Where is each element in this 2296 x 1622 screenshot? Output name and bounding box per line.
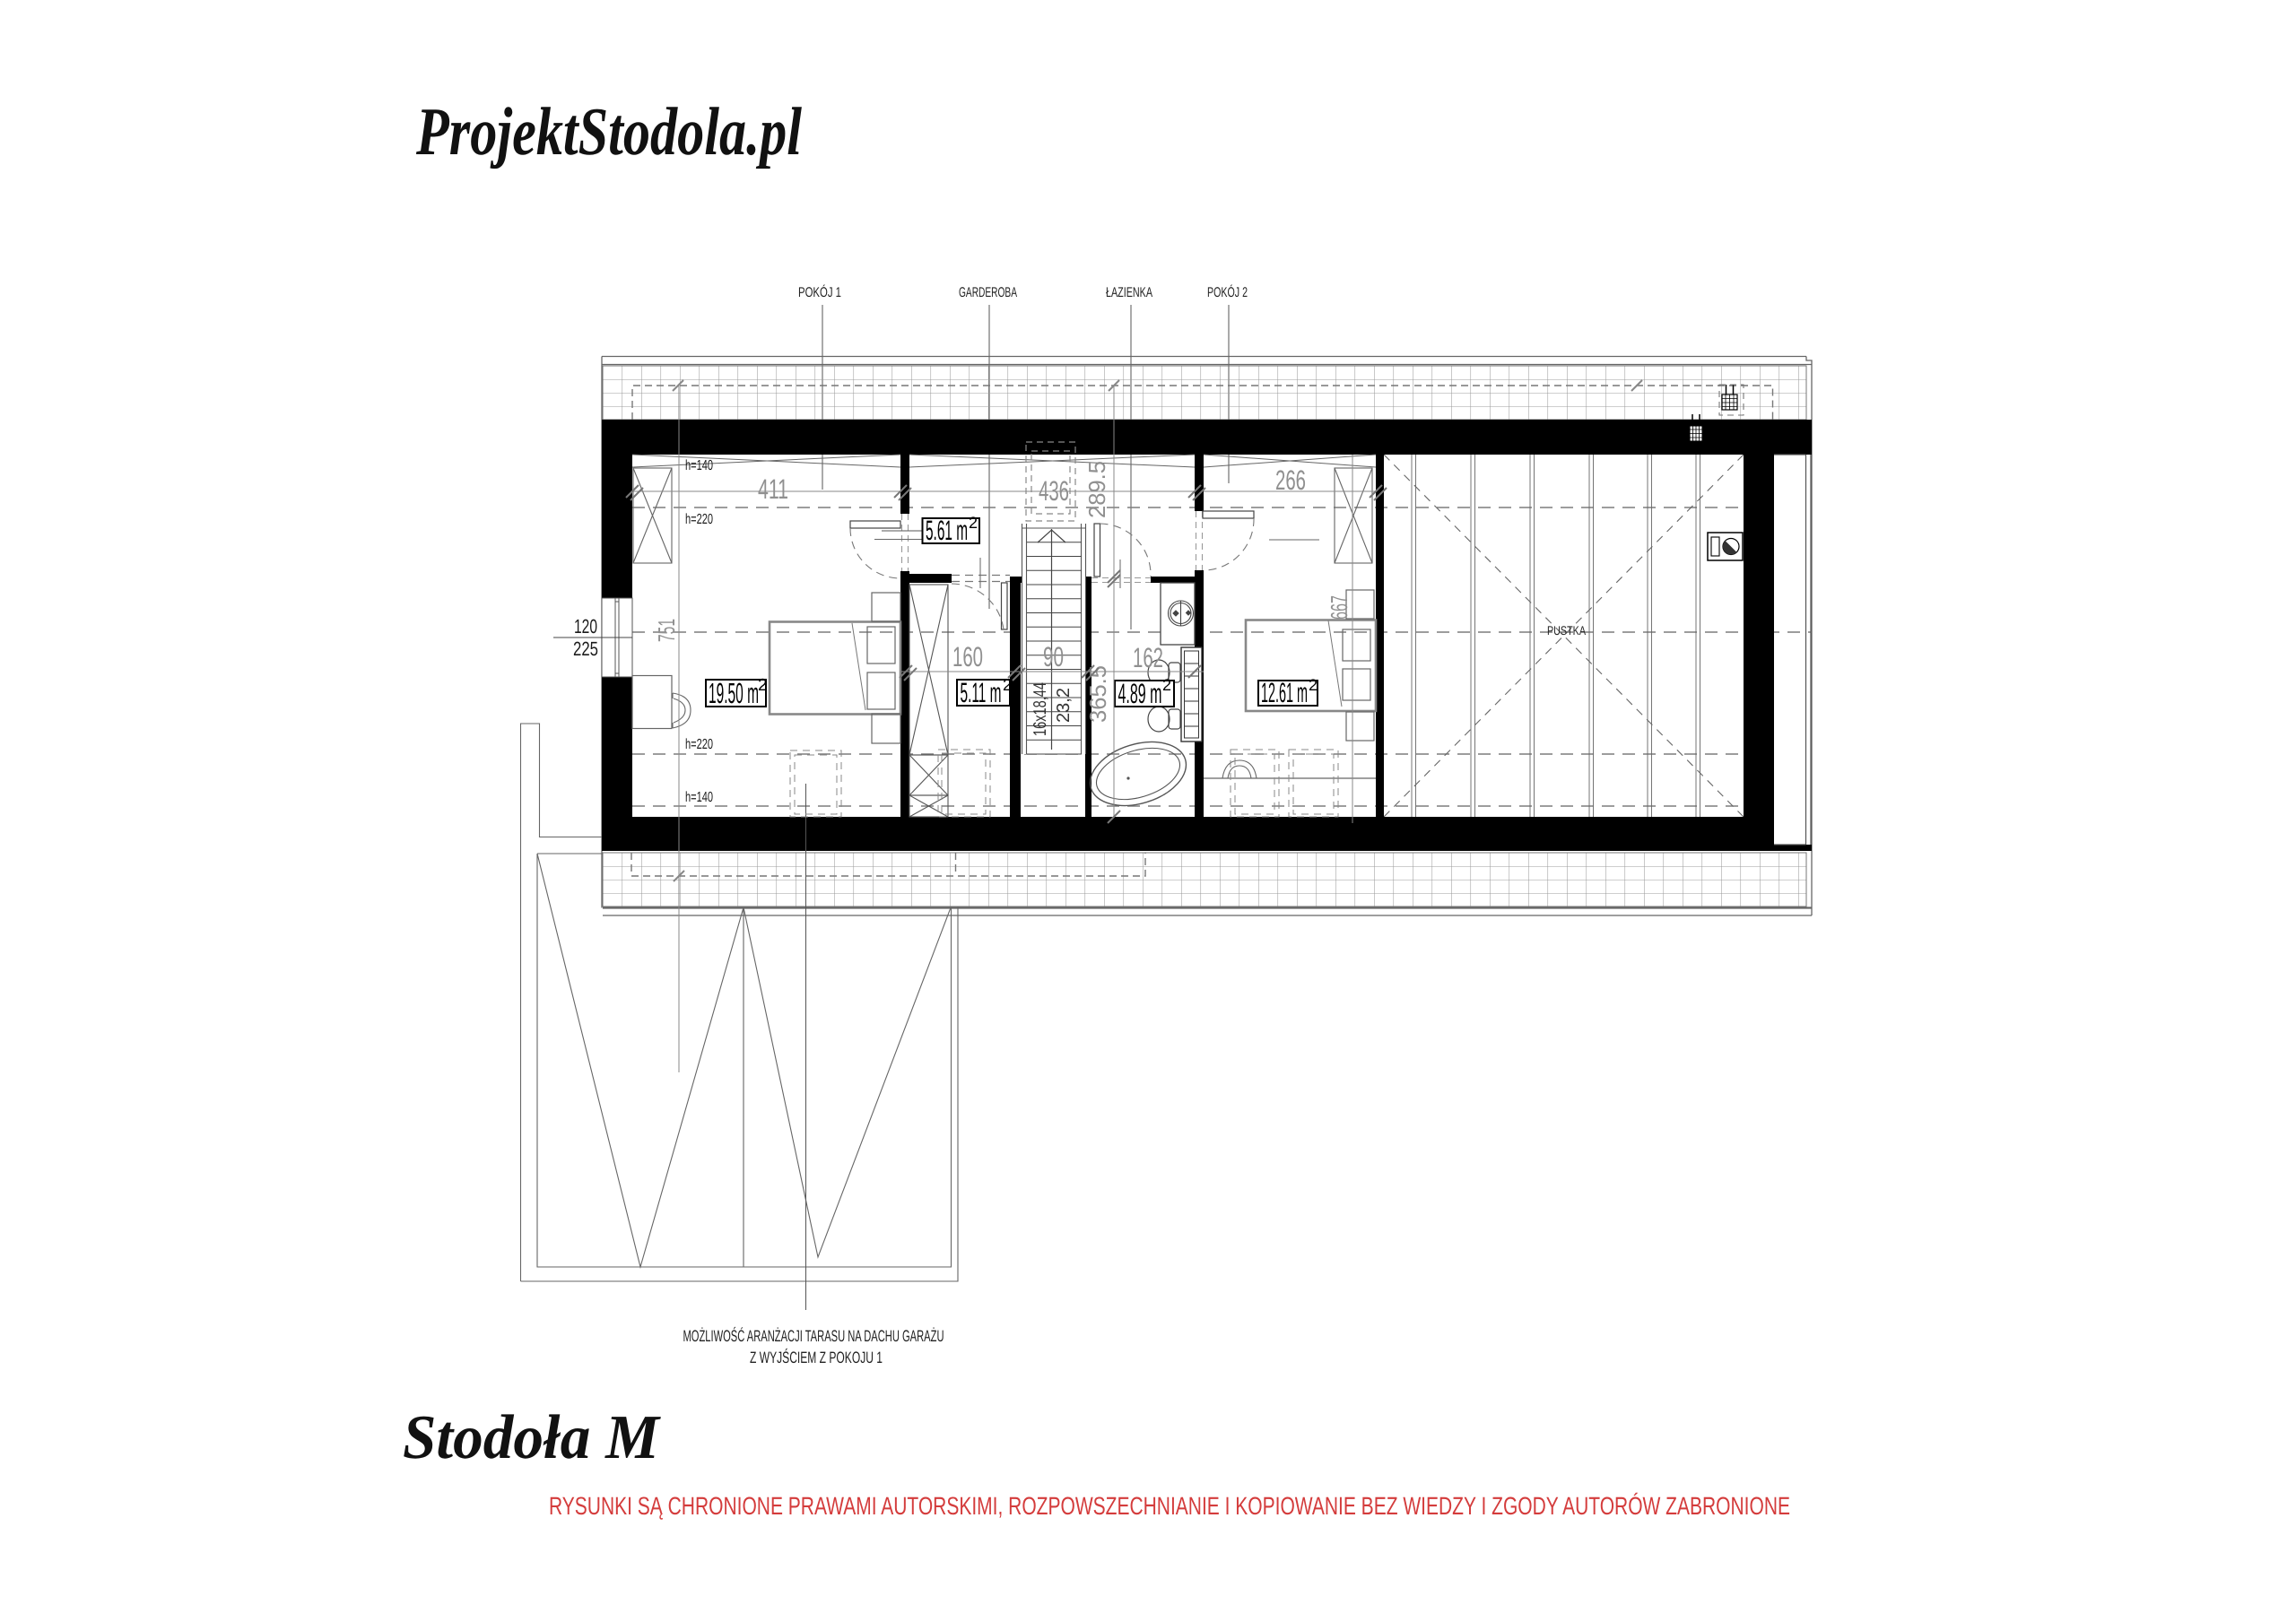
- svg-text:2: 2: [1162, 676, 1171, 694]
- svg-text:RYSUNKI SĄ CHRONIONE PRAWAMI A: RYSUNKI SĄ CHRONIONE PRAWAMI AUTORSKIMI,…: [549, 1492, 1790, 1520]
- svg-text:POKÓJ 1: POKÓJ 1: [798, 284, 841, 300]
- svg-text:365.5: 365.5: [1084, 665, 1111, 723]
- svg-text:16x18,44: 16x18,44: [1031, 682, 1050, 736]
- svg-text:Stodoła M: Stodoła M: [403, 1403, 662, 1472]
- svg-text:ŁAZIENKA: ŁAZIENKA: [1106, 285, 1152, 300]
- svg-text:h=220: h=220: [685, 512, 713, 527]
- svg-text:19.50 m: 19.50 m: [709, 677, 759, 709]
- svg-text:2: 2: [1309, 676, 1318, 694]
- svg-text:162: 162: [1133, 642, 1163, 673]
- svg-text:266: 266: [1275, 464, 1306, 496]
- svg-text:2: 2: [758, 676, 768, 695]
- svg-text:h=140: h=140: [685, 458, 713, 473]
- svg-text:2: 2: [1003, 676, 1012, 694]
- svg-text:ProjektStodola.pl: ProjektStodola.pl: [415, 94, 802, 169]
- svg-text:667: 667: [1326, 595, 1352, 620]
- svg-text:225: 225: [573, 638, 598, 660]
- svg-text:MOŻLIWOŚĆ ARANŻACJI TARASU NA: MOŻLIWOŚĆ ARANŻACJI TARASU NA DACHU GARA…: [683, 1326, 944, 1345]
- svg-text:5.11 m: 5.11 m: [961, 677, 1002, 708]
- svg-text:POKÓJ 2: POKÓJ 2: [1207, 284, 1248, 300]
- svg-text:2: 2: [969, 514, 978, 532]
- svg-text:h=140: h=140: [685, 790, 713, 805]
- svg-text:Z WYJŚCIEM Z POKOJU 1: Z WYJŚCIEM Z POKOJU 1: [750, 1348, 883, 1366]
- svg-text:436: 436: [1039, 475, 1069, 507]
- svg-text:120: 120: [574, 615, 597, 638]
- svg-text:289.5: 289.5: [1083, 461, 1110, 518]
- svg-text:4.89 m: 4.89 m: [1118, 678, 1162, 709]
- svg-text:12.61 m: 12.61 m: [1261, 677, 1308, 708]
- svg-text:PUSTKA: PUSTKA: [1547, 623, 1587, 638]
- svg-text:h=220: h=220: [685, 737, 713, 752]
- svg-text:GARDEROBA: GARDEROBA: [959, 285, 1017, 300]
- svg-text:5.61 m: 5.61 m: [926, 515, 968, 546]
- svg-text:23,2: 23,2: [1054, 688, 1074, 723]
- svg-text:411: 411: [758, 473, 788, 505]
- svg-text:90: 90: [1043, 641, 1064, 672]
- svg-text:751: 751: [653, 619, 680, 642]
- svg-text:160: 160: [952, 641, 983, 672]
